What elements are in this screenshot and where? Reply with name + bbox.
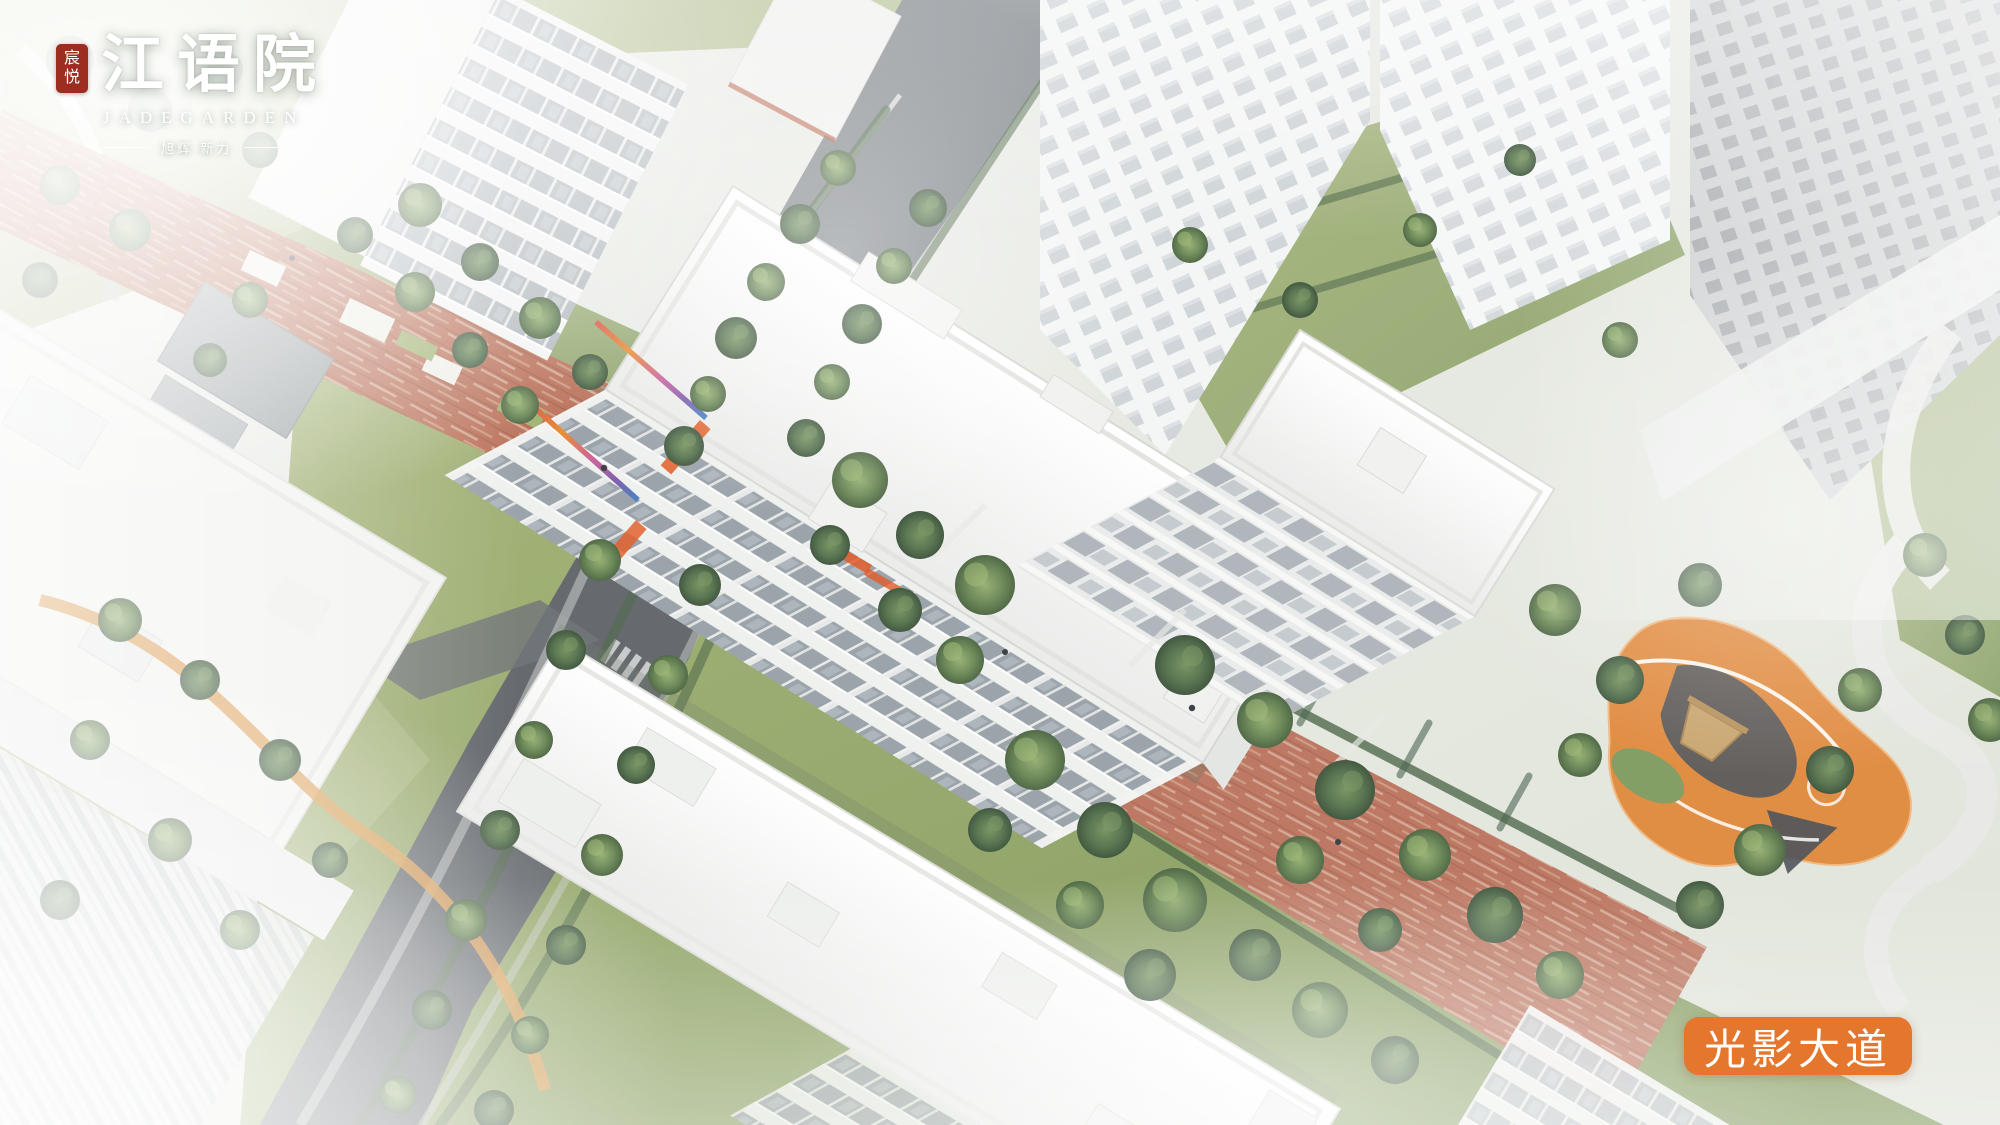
brand-logo: 宸 悦 江语院 JADEGARDEN 旭辉·新力 [56,34,329,157]
project-subtitle: JADEGARDEN [103,108,329,128]
avenue-label-text: 光影大道 [1704,1016,1892,1077]
avenue-label-badge: 光影大道 [1684,1017,1912,1075]
tagline-text: 旭辉·新力 [161,138,232,157]
project-title: 江语院 [101,34,329,97]
seal-char-top: 宸 [64,50,80,68]
developer-tagline: 旭辉·新力 [103,138,329,157]
brand-seal: 宸 悦 [56,44,88,93]
haze-overlays [0,0,2000,1125]
scene-rendering [0,0,2000,1125]
tagline-rule-right [244,147,290,148]
seal-char-bottom: 悦 [64,69,80,87]
tagline-rule-left [103,147,149,148]
